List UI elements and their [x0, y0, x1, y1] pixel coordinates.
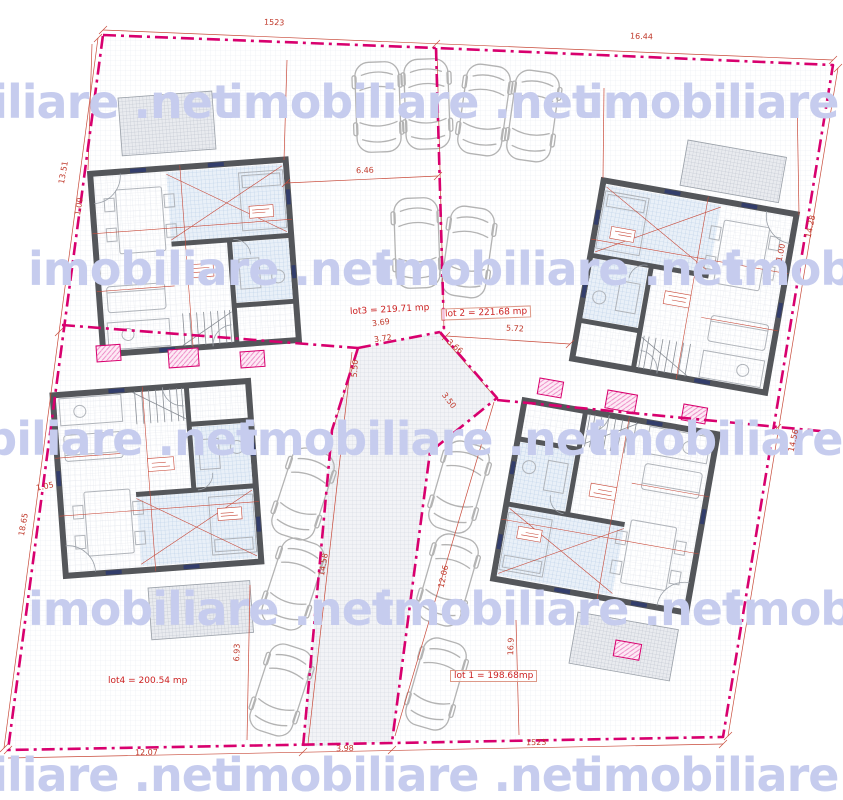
- site-plan: imobiliare .net imobiliare .net imobilia…: [0, 0, 843, 800]
- watermark: imobiliare .net: [0, 75, 233, 129]
- dim-label: 3.98: [336, 744, 354, 753]
- dim-label: 12.07: [135, 748, 158, 758]
- dim-label: 16.44: [630, 32, 653, 42]
- dim-label: 16.9: [506, 637, 516, 655]
- watermark: imobiliare .net: [378, 582, 743, 636]
- lot1-area-label: lot 1 = 198.68mp: [450, 670, 537, 682]
- watermark: imobiliare .net: [242, 412, 607, 466]
- dim-label: 5.72: [506, 324, 524, 334]
- dim-label: 5.50: [350, 359, 360, 377]
- watermark: imobiliare .net: [228, 748, 593, 800]
- watermark: imobiliare .net: [0, 412, 257, 466]
- dim-label: 6.93: [232, 643, 242, 661]
- dim-label: 6.46: [356, 166, 374, 176]
- watermark: imobiliare .net: [728, 582, 843, 636]
- watermark: imobiliare .net: [28, 582, 393, 636]
- dim-label: 1523: [526, 738, 547, 748]
- house-lot4: [50, 379, 263, 578]
- watermark: imobiliare .net: [28, 242, 393, 296]
- watermark: imobiliare .net: [228, 75, 593, 129]
- watermark: imobiliare .net: [588, 748, 843, 800]
- watermark: imobiliare .net: [0, 748, 233, 800]
- dim-label: 1523: [264, 18, 285, 28]
- watermark: imobiliare .net: [588, 75, 843, 129]
- lot4-area-label: lot4 = 200.54 mp: [108, 676, 187, 686]
- watermark: imobiliare .net: [592, 412, 843, 466]
- watermark: imobiliare .net: [378, 242, 743, 296]
